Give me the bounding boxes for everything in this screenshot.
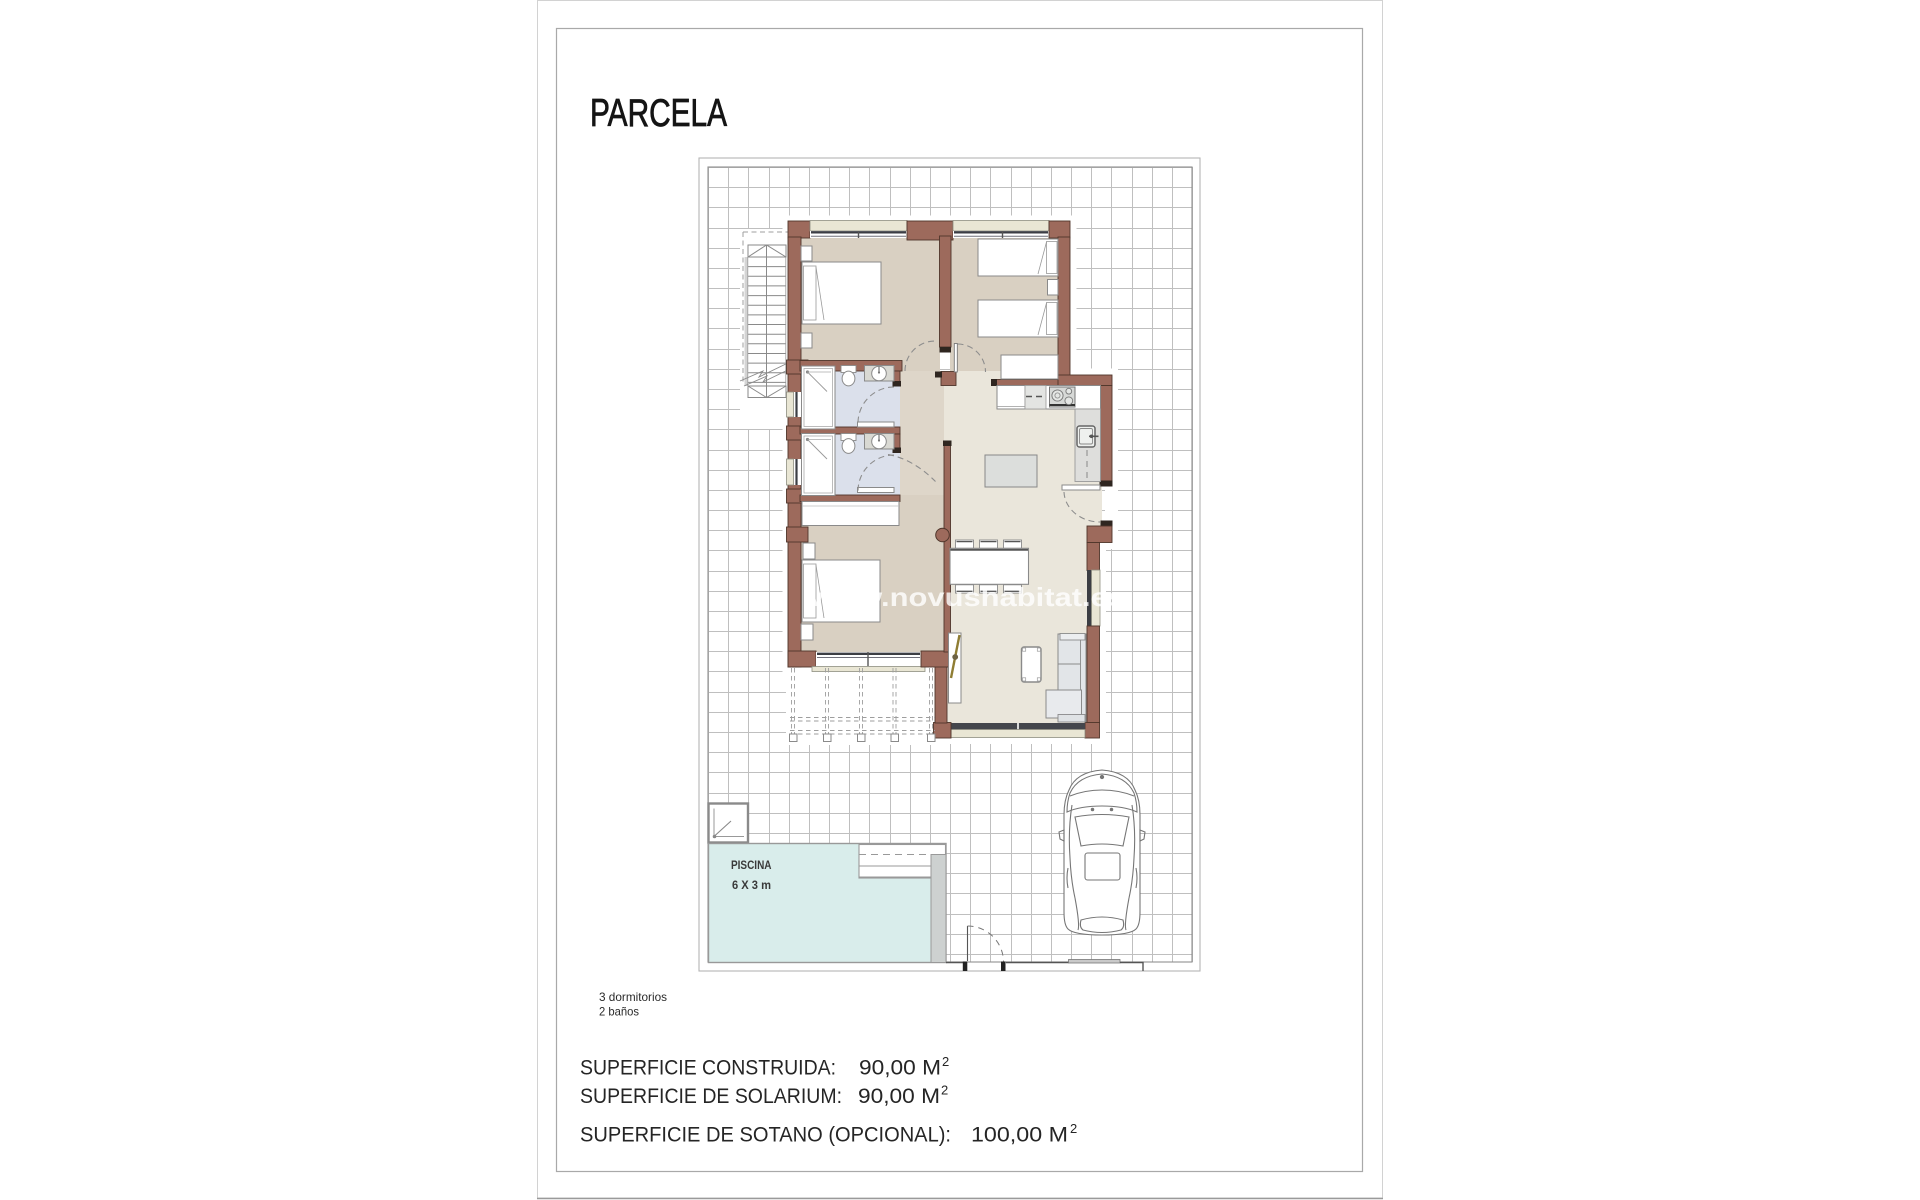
svg-text:6 X 3 m: 6 X 3 m [732, 880, 771, 892]
svg-text:2: 2 [1070, 1121, 1077, 1136]
svg-text:SUPERFICIE CONSTRUIDA:: SUPERFICIE CONSTRUIDA: [580, 1056, 836, 1080]
svg-text:90,00 M: 90,00 M [859, 1056, 941, 1080]
svg-text:3 dormitorios: 3 dormitorios [599, 990, 667, 1004]
svg-text:90,00 M: 90,00 M [858, 1084, 940, 1108]
svg-text:100,00 M: 100,00 M [971, 1123, 1068, 1147]
svg-text:2: 2 [942, 1054, 949, 1069]
svg-text:SUPERFICIE DE SOLARIUM:: SUPERFICIE DE SOLARIUM: [580, 1084, 842, 1108]
svg-text:PARCELA: PARCELA [590, 92, 727, 135]
svg-text:2: 2 [941, 1083, 948, 1098]
svg-text:2 baños: 2 baños [599, 1005, 639, 1019]
svg-text:SUPERFICIE DE SOTANO (OPCIONAL: SUPERFICIE DE SOTANO (OPCIONAL): [580, 1123, 951, 1147]
svg-text:www.novushabitat.es: www.novushabitat.es [809, 582, 1125, 612]
svg-text:PISCINA: PISCINA [731, 860, 772, 872]
